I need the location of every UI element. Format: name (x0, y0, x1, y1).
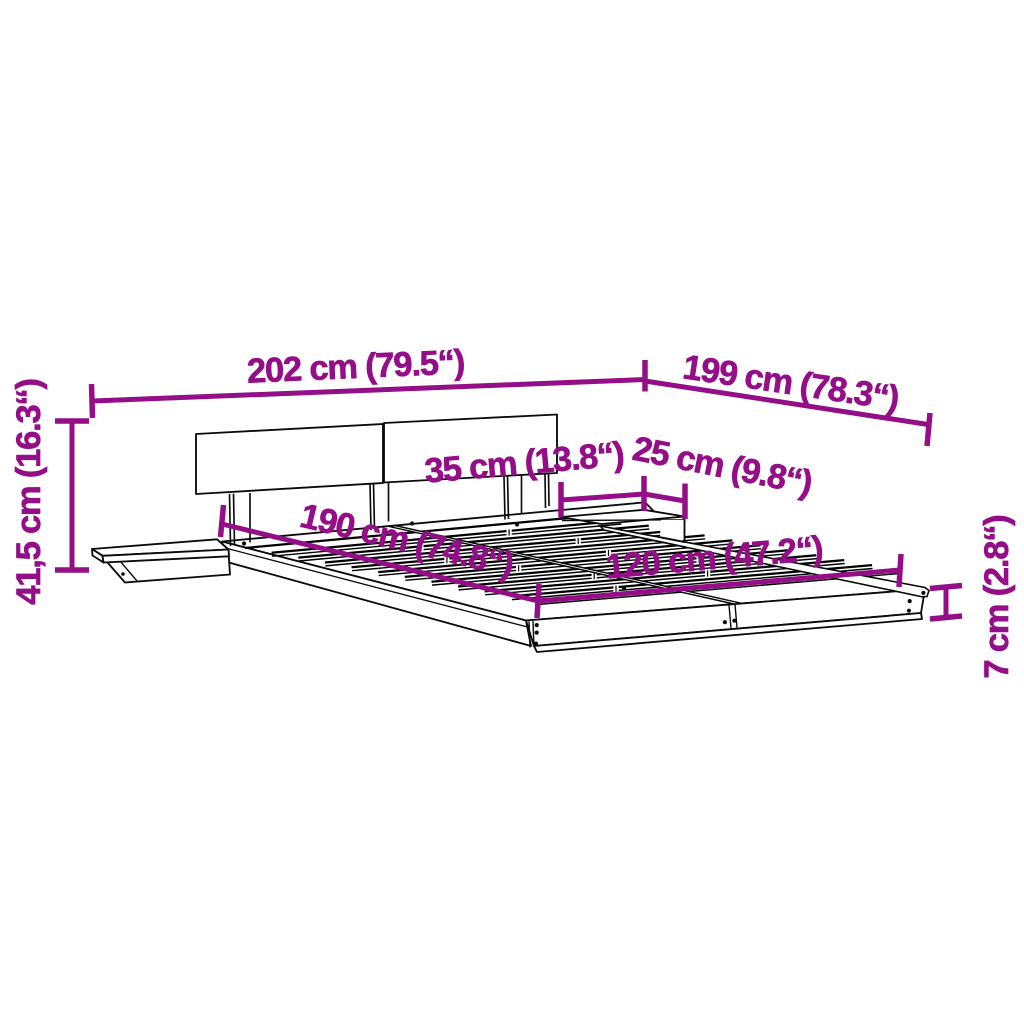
svg-text:7 cm (2.8“): 7 cm (2.8“) (978, 515, 1016, 678)
svg-text:41,5 cm (16.3“): 41,5 cm (16.3“) (10, 379, 48, 605)
